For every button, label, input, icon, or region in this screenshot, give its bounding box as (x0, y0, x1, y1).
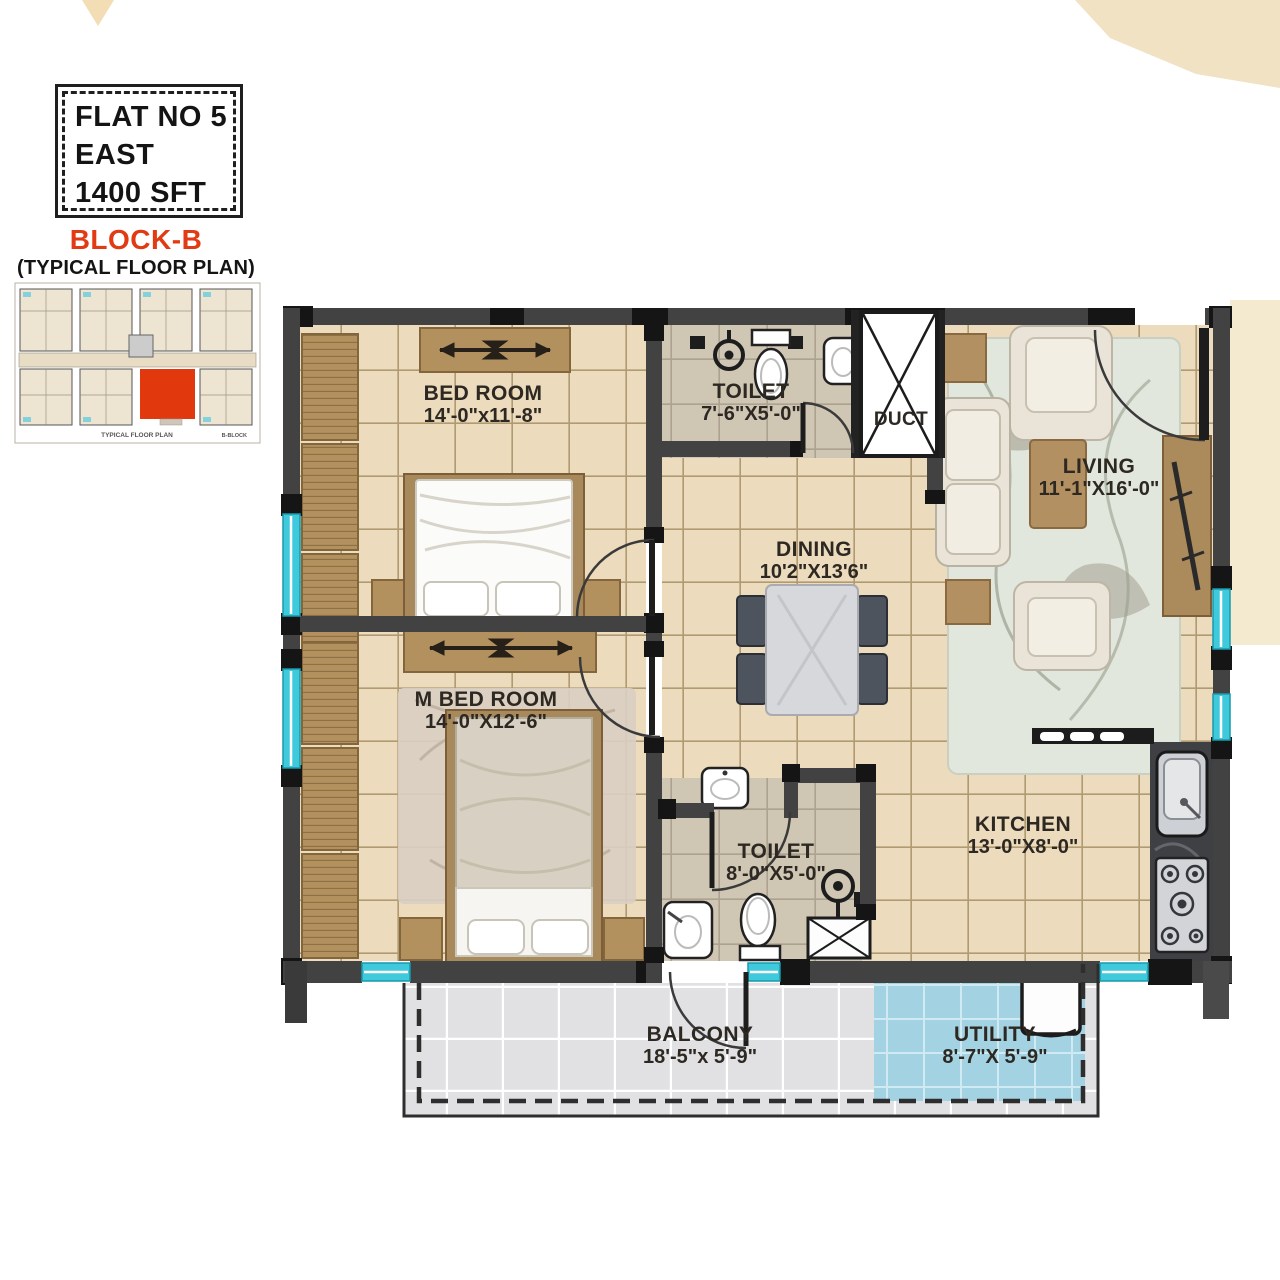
shower-tray-icon (808, 918, 870, 958)
room-label-master-bedroom: M BED ROOM 14'-0"X12'-6" (415, 689, 558, 733)
dining-chair (857, 654, 887, 704)
room-label-utility: UTILITY 8'-7"X 5'-9" (942, 1024, 1047, 1068)
block-subtitle: (TYPICAL FLOOR PLAN) (10, 257, 262, 280)
room-label-living: LIVING 11'-1"X16'-0" (1039, 456, 1160, 500)
flat-info-text: FLAT NO 5 EAST 1400 SFT (62, 91, 236, 211)
wardrobe (302, 642, 358, 744)
shower-bracket (690, 336, 705, 349)
kitchen-counter (1150, 742, 1214, 962)
gas-stove (1156, 858, 1208, 952)
flat-number: FLAT NO 5 (75, 98, 233, 136)
side-table (946, 580, 990, 624)
entrance-door-leaf (1199, 328, 1209, 440)
room-label-balcony: BALCONY 18'-5"x 5'-9" (643, 1024, 757, 1068)
thumbnail-block-label: B-BLOCK (222, 433, 247, 439)
bed (446, 710, 602, 962)
side-table (400, 918, 442, 960)
block-header: BLOCK-B (TYPICAL FLOOR PLAN) (10, 224, 262, 280)
wardrobe (302, 748, 358, 850)
room-label-toilet-bottom: TOILET 8'-0"X5'-0" (726, 841, 826, 885)
sofa (936, 398, 1010, 566)
thumbnail-caption: TYPICAL FLOOR PLAN (101, 432, 173, 439)
room-label-bedroom: BED ROOM 14'-0"x11'-8" (424, 383, 543, 427)
master-bedroom-furniture (302, 622, 644, 962)
room-label-kitchen: KITCHEN 13'-0"X8'-0" (968, 814, 1079, 858)
room-label-dining: DINING 10'2"X13'6" (760, 539, 869, 583)
side-table (604, 918, 644, 960)
side-table (944, 334, 986, 382)
dining-chair (737, 654, 767, 704)
flat-facing: EAST (75, 136, 233, 174)
tv-console (1163, 436, 1211, 616)
corner-basin-icon (664, 902, 712, 958)
wardrobe (302, 334, 358, 440)
block-thumbnail: TYPICAL FLOOR PLAN B-BLOCK (15, 283, 260, 443)
wardrobe (302, 854, 358, 958)
kitchen-sink (1157, 752, 1207, 836)
room-label-duct: DUCT (874, 409, 928, 431)
wardrobe (302, 444, 358, 550)
bed (404, 474, 584, 624)
flat-area: 1400 SFT (75, 174, 233, 212)
dining-chair (857, 596, 887, 646)
washbasin-icon (702, 768, 748, 808)
block-title: BLOCK-B (10, 224, 262, 256)
room-label-toilet-top: TOILET 7'-6"X5'-0" (701, 381, 801, 425)
floor-plan-page: TYPICAL FLOOR PLAN B-BLOCK FLAT NO 5 EAS… (0, 0, 1280, 1280)
dining-chair (737, 596, 767, 646)
kitchen-shelf (1032, 728, 1154, 744)
highlighted-flat (140, 369, 195, 419)
armchair (1014, 582, 1110, 670)
duct-shaft (851, 310, 945, 458)
flat-info-box: FLAT NO 5 EAST 1400 SFT (55, 84, 243, 218)
